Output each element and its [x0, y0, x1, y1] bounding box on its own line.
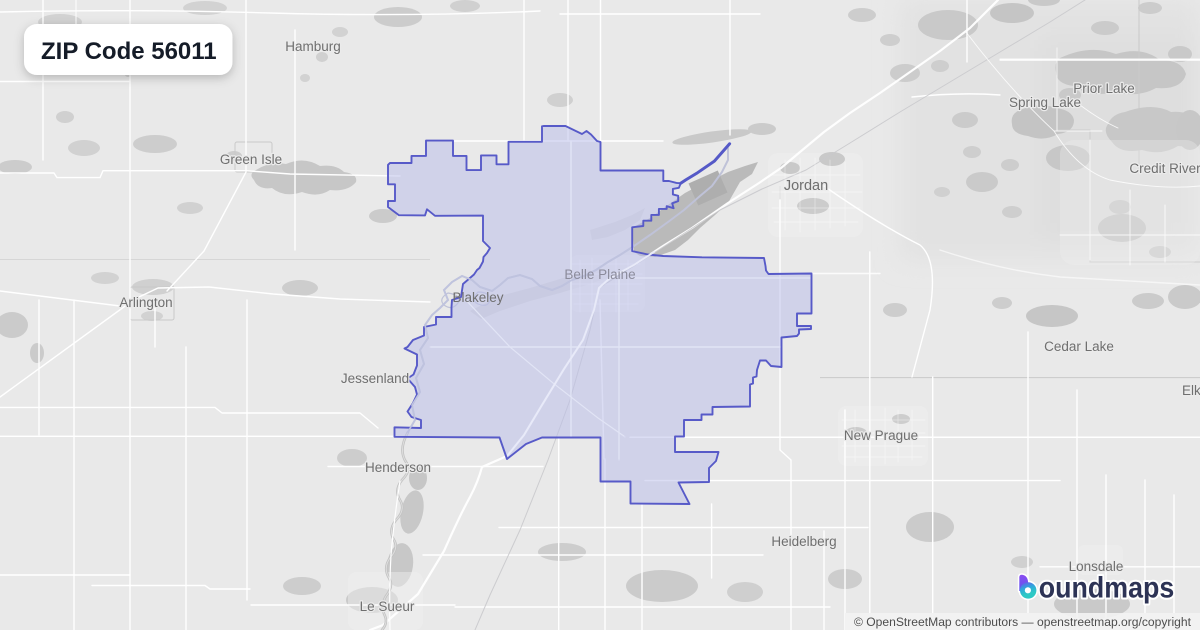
- svg-text:Henderson: Henderson: [365, 460, 431, 475]
- svg-text:Spring Lake: Spring Lake: [1009, 95, 1081, 110]
- svg-text:Hamburg: Hamburg: [285, 39, 341, 54]
- svg-text:Elko: Elko: [1182, 383, 1200, 398]
- svg-text:New Prague: New Prague: [844, 428, 918, 443]
- svg-text:oundmaps: oundmaps: [1039, 571, 1174, 605]
- svg-text:Jordan: Jordan: [784, 178, 828, 194]
- svg-text:Cedar Lake: Cedar Lake: [1044, 339, 1114, 354]
- svg-text:Le Sueur: Le Sueur: [360, 599, 415, 614]
- svg-text:© OpenStreetMap contributors —: © OpenStreetMap contributors — openstree…: [854, 615, 1192, 629]
- svg-text:Credit River: Credit River: [1129, 161, 1200, 176]
- svg-text:Blakeley: Blakeley: [452, 290, 503, 305]
- svg-text:Prior Lake: Prior Lake: [1073, 81, 1135, 96]
- svg-text:Jessenland: Jessenland: [341, 371, 409, 386]
- svg-text:Arlington: Arlington: [119, 295, 172, 310]
- svg-text:Belle Plaine: Belle Plaine: [564, 267, 635, 282]
- svg-text:Green Isle: Green Isle: [220, 152, 282, 167]
- svg-text:ZIP Code 56011: ZIP Code 56011: [41, 38, 217, 65]
- svg-text:Heidelberg: Heidelberg: [771, 534, 836, 549]
